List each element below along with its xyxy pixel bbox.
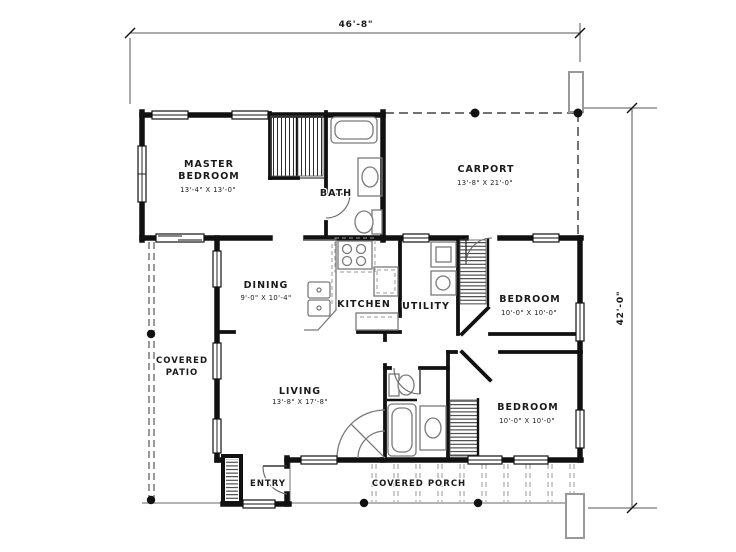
svg-text:PATIO: PATIO [166,368,199,378]
bedroom-right-label: BEDROOM [499,294,561,305]
master-bedroom-label: MASTER [184,159,234,170]
window [213,343,221,379]
paper-background [0,0,736,552]
window [576,410,584,448]
window [514,456,548,464]
bedroom-bottom-size: 10'-0" X 10'-0" [499,417,555,425]
carport-label: CARPORT [457,164,514,175]
window [152,111,188,119]
window [243,500,275,508]
entry-closet-hatch [226,459,238,500]
master-closet [271,116,323,176]
patio-post [147,496,155,504]
window [468,456,502,464]
window [301,456,337,464]
master-bedroom-size: 13'-4" X 13'-0" [180,186,236,194]
entry-label: ENTRY [250,479,286,489]
entry-closet [223,456,241,503]
window [138,146,146,202]
kitchen-sink [308,282,330,298]
bedroom-right-size: 10'-0" X 10'-0" [501,309,557,317]
overall-width-dimension: 46'-8" [339,20,374,30]
window [403,234,429,242]
window [576,303,584,341]
carport-corner-post-extension [569,72,583,112]
bedroom-right-closet [460,240,486,304]
svg-text:BEDROOM: BEDROOM [178,171,240,182]
window [213,419,221,453]
dining-label: DINING [244,280,289,291]
window [232,111,268,119]
porch-post [360,499,368,507]
bedroom-bottom-closet [450,398,478,458]
carport-post [471,109,480,118]
bath-label: BATH [320,188,352,199]
patio-post [147,330,155,338]
dining-size: 9'-0" X 10'-4" [240,294,291,302]
floor-plan-drawing: 46'-8" 42'-0" [0,0,736,552]
utility-label: UTILITY [402,301,450,312]
bath-sink [362,167,378,187]
sliding-door [156,234,204,242]
bedroom-right-closet-hatch [460,240,486,304]
bedroom-bottom-label: BEDROOM [497,402,559,413]
porch-post [474,499,482,507]
floor-plan-page: 46'-8" 42'-0" [0,0,736,552]
toilet-bowl [355,211,373,233]
bedroom-bottom-closet-hatch [450,400,478,456]
kitchen-label: KITCHEN [337,299,391,310]
covered-patio-label: COVERED [156,356,208,366]
window [533,234,559,242]
covered-porch-label: COVERED PORCH [372,479,466,489]
carport-size: 13'-8" X 21'-0" [457,179,513,187]
living-label: LIVING [279,386,321,397]
window [213,251,221,287]
overall-height-dimension: 42'-0" [616,291,626,326]
porch-pier [566,494,584,538]
living-size: 13'-8" X 17'-8" [272,398,328,406]
bath2-sink [425,418,441,438]
carport-post [574,109,583,118]
master-closet-hatch [271,116,323,176]
